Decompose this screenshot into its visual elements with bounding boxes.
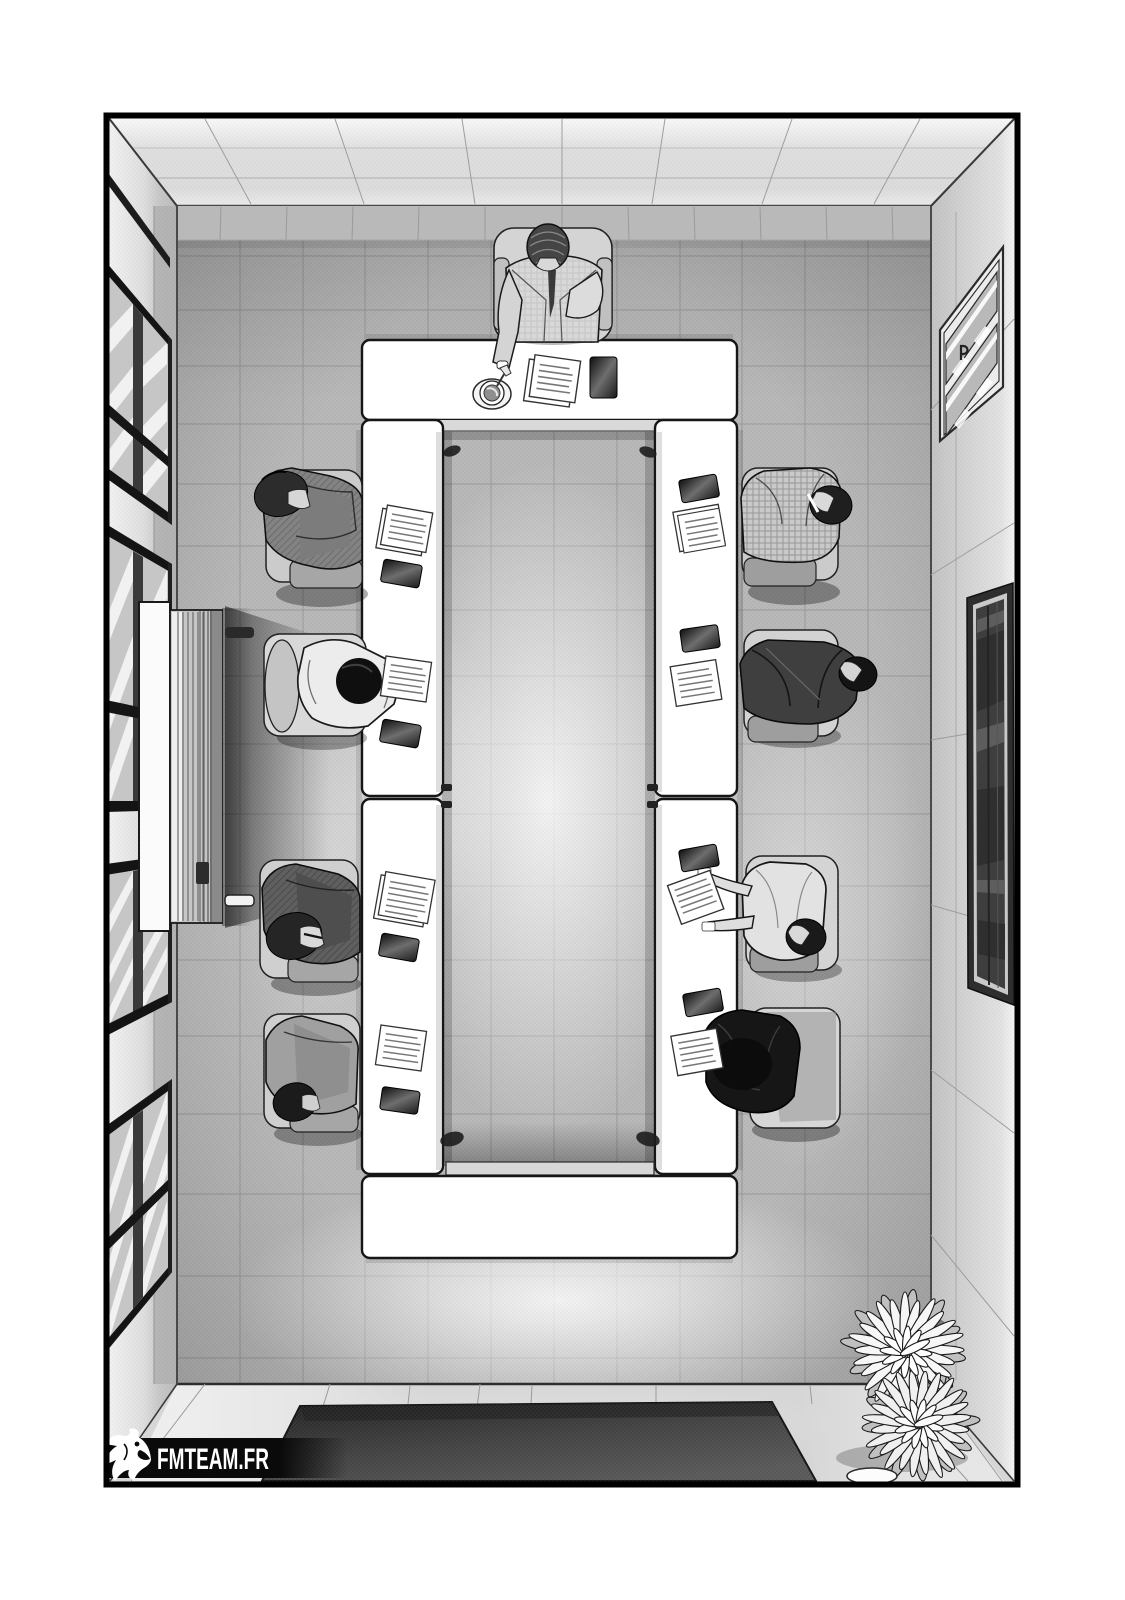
svg-text:FMTEAM.FR: FMTEAM.FR (157, 1443, 269, 1476)
